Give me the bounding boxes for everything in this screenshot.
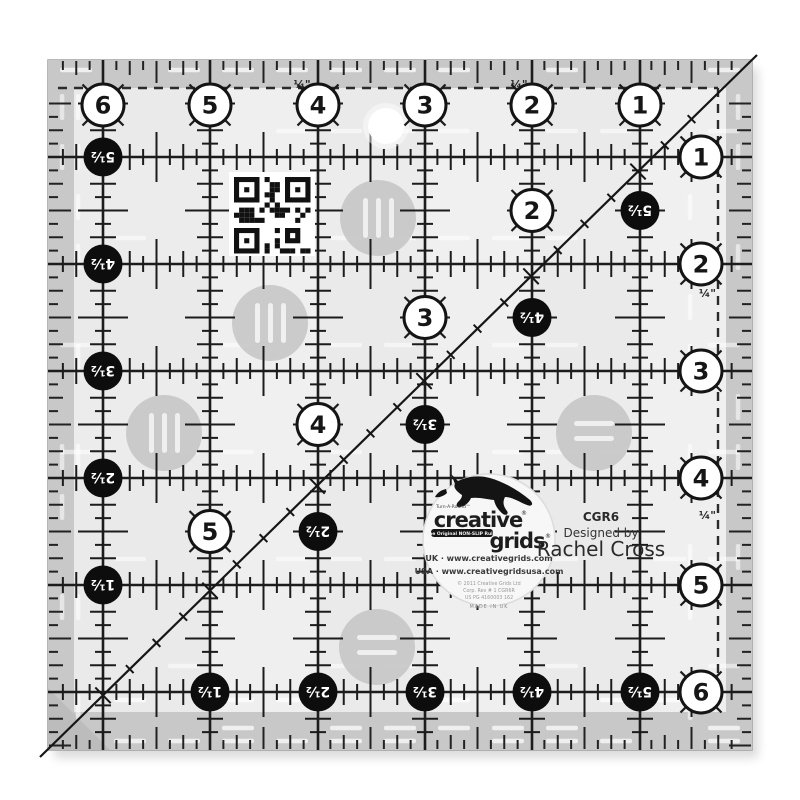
quarter-label-right-upper: ¼" [699, 287, 716, 300]
grip-dot-stripe [574, 436, 614, 441]
circle-number: 2 [693, 251, 710, 279]
grip-dash [708, 739, 740, 744]
circle-number: 1½ [91, 576, 115, 592]
quarter-label-right-lower: ¼" [699, 509, 716, 522]
qr-module [280, 208, 285, 213]
circle-number: 3 [417, 92, 434, 120]
grip-dash [546, 68, 578, 73]
grip-dash [492, 739, 524, 744]
circle-number: 5½ [628, 201, 652, 217]
qr-module [275, 243, 280, 248]
half-number-circle: 4½ [513, 298, 552, 337]
grip-dash [330, 343, 362, 348]
circle-number: 1 [693, 144, 710, 172]
qr-module [275, 187, 280, 192]
qr-module [300, 248, 305, 253]
grip-dot-stripe [149, 413, 154, 453]
qr-module [265, 177, 270, 182]
grip-dash [546, 129, 578, 134]
half-number-circle: 1½ [191, 673, 230, 712]
qr-module [239, 218, 244, 223]
grip-dash [330, 129, 362, 134]
circle-number: 5½ [628, 683, 652, 699]
grip-dash-vertical [76, 94, 81, 120]
grip-dash [438, 129, 470, 134]
qr-finder-dot [295, 187, 300, 192]
grip-dot-stripe [363, 198, 368, 238]
qr-module [275, 182, 280, 187]
grip-dash [276, 557, 308, 562]
grip-dash [546, 343, 578, 348]
qr-module [270, 192, 275, 197]
grip-dash-vertical [688, 294, 693, 320]
grip-dot-stripe [574, 421, 614, 426]
grip-dash [330, 726, 362, 731]
grip-dot-stripe [255, 303, 260, 343]
circle-number: 4½ [520, 683, 544, 699]
qr-module [239, 213, 244, 218]
grip-dash [114, 236, 146, 241]
qr-module [275, 213, 280, 218]
grip-dot-stripe [389, 198, 394, 238]
copyright-line-3: US PG 4160003 162 [465, 595, 513, 601]
grip-dash [708, 557, 740, 562]
qr-finder-dot [244, 187, 249, 192]
whole-number-circle: 6 [82, 84, 124, 126]
grip-dash [546, 726, 578, 731]
registered-mark: ® [521, 510, 527, 517]
half-number-circle: 3½ [406, 673, 445, 712]
qr-module [249, 213, 254, 218]
grip-dash [708, 726, 740, 731]
qr-module [265, 192, 270, 197]
circle-number: 3½ [413, 683, 437, 699]
qr-module [270, 187, 275, 192]
grip-dash [168, 664, 200, 669]
half-number-circle: 3½ [406, 405, 445, 444]
grip-dash-vertical [60, 494, 65, 520]
grip-dash [708, 450, 740, 455]
whole-number-circle: 1 [619, 84, 661, 126]
grip-dash [438, 68, 470, 73]
qr-module [300, 213, 305, 218]
circle-number: 2½ [306, 522, 330, 538]
qr-module [270, 208, 275, 213]
hang-hole [363, 103, 409, 149]
whole-number-circle: 3 [404, 84, 446, 126]
circle-number: 4 [310, 92, 327, 120]
tagline-text: The Original NON-SLIP Ruler [426, 531, 499, 537]
copyright-line-2: Corp. Rev # 1 CGR6R [463, 588, 515, 594]
qr-code [229, 172, 315, 256]
circle-number: 1 [632, 92, 649, 120]
grip-dash-vertical [736, 444, 741, 470]
qr-module [234, 213, 239, 218]
circle-number: 4 [693, 465, 710, 493]
grip-dash [222, 726, 254, 731]
whole-number-circle: 1 [680, 136, 722, 178]
circle-number: 5 [202, 518, 219, 546]
grip-dash-vertical [736, 544, 741, 570]
grip-dash-vertical [60, 594, 65, 620]
grip-dash [276, 129, 308, 134]
grip-dot-stripe [357, 650, 397, 655]
half-number-circle: 4½ [513, 673, 552, 712]
designer-name-text: Rachel Cross [537, 537, 665, 561]
circle-number: 2 [524, 92, 541, 120]
whole-number-circle: 3 [680, 350, 722, 392]
whole-number-circle: 3 [404, 297, 446, 339]
half-number-circle: 4½ [84, 245, 123, 284]
circle-number: 2½ [91, 469, 115, 485]
circle-number: 6 [693, 679, 710, 707]
grip-dash [384, 726, 416, 731]
qr-module [290, 248, 295, 253]
grip-dash [384, 343, 416, 348]
ruler-photo-svg: ¼" ¼" ¼" ¼" 6543211234565½4½3½2½1½1½2½3½… [0, 0, 800, 800]
half-number-circle: 2½ [299, 512, 338, 551]
hang-hole [368, 108, 404, 144]
grip-dash [438, 236, 470, 241]
qr-module [265, 243, 270, 248]
half-number-circle: 3½ [84, 352, 123, 391]
half-number-circle: 5½ [621, 673, 660, 712]
grip-dot-stripe [162, 413, 167, 453]
circle-number: 3 [417, 304, 434, 332]
qr-module [285, 248, 290, 253]
qr-module [305, 248, 310, 253]
grip-dash [330, 557, 362, 562]
whole-number-circle: 5 [189, 84, 231, 126]
grip-dash [222, 450, 254, 455]
qr-module [275, 238, 280, 243]
grip-dash [708, 129, 740, 134]
circle-number: 5 [693, 572, 710, 600]
grip-dot-stripe [268, 303, 273, 343]
whole-number-circle: 5 [680, 564, 722, 606]
qr-align-inner [290, 233, 295, 238]
circle-number: 5½ [91, 148, 115, 164]
grip-dot-stripe [376, 198, 381, 238]
qr-finder-dot [244, 238, 249, 243]
qr-module [265, 248, 270, 253]
circle-number: 6 [95, 92, 112, 120]
qr-module [249, 208, 254, 213]
circle-number: 3½ [91, 362, 115, 378]
whole-number-circle: 2 [511, 84, 553, 126]
qr-module [260, 218, 265, 223]
qr-module [249, 218, 254, 223]
model-text: CGR6 [583, 510, 619, 524]
whole-number-circle: 6 [680, 671, 722, 713]
whole-number-circle: 4 [297, 84, 339, 126]
whole-number-circle: 2 [680, 243, 722, 285]
circle-number: 3 [693, 358, 710, 386]
grip-dash-vertical [60, 94, 65, 120]
circle-number: 5 [202, 92, 219, 120]
qr-module [270, 197, 275, 202]
whole-number-circle: 5 [189, 511, 231, 553]
qr-module [265, 203, 270, 208]
grip-dot-stripe [357, 635, 397, 640]
qr-module [270, 182, 275, 187]
grip-dash [708, 664, 740, 669]
qr-module [280, 248, 285, 253]
qr-module [280, 213, 285, 218]
whole-number-circle: 4 [297, 404, 339, 446]
qr-module [244, 213, 249, 218]
product-photo: ¼" ¼" ¼" ¼" 6543211234565½4½3½2½1½1½2½3½… [0, 0, 800, 800]
qr-module [275, 228, 280, 233]
grip-dash [438, 726, 470, 731]
qr-module [295, 208, 300, 213]
qr-module [285, 208, 290, 213]
whole-number-circle: 2 [511, 190, 553, 232]
grip-dash-vertical [60, 444, 65, 470]
grip-dash-vertical [688, 194, 693, 220]
grip-dash-vertical [736, 94, 741, 120]
circle-number: 2½ [306, 683, 330, 699]
circle-number: 2 [524, 197, 541, 225]
grip-dash [708, 343, 740, 348]
grip-dot [556, 395, 632, 471]
uk-url-text: UK · www.creativegrids.com [425, 554, 552, 563]
grip-dash-vertical [736, 244, 741, 270]
grip-dash-vertical [76, 194, 81, 220]
half-number-circle: 1½ [84, 566, 123, 605]
bottom-band [48, 712, 752, 750]
half-number-circle: 2½ [299, 673, 338, 712]
qr-module [295, 218, 300, 223]
half-number-circle: 2½ [84, 459, 123, 498]
qr-module [275, 208, 280, 213]
copyright-line-1: © 2011 Creative Grids Ltd [457, 580, 520, 587]
grip-dash [492, 726, 524, 731]
circle-number: 4½ [520, 308, 544, 324]
circle-number: 4½ [91, 255, 115, 271]
qr-module [275, 203, 280, 208]
circle-number: 3½ [413, 415, 437, 431]
qr-module [305, 208, 310, 213]
made-in-text: MADE IN UK [470, 604, 509, 610]
usa-url-text: USA · www.creativegridsusa.com [415, 567, 564, 576]
grip-dash [546, 664, 578, 669]
half-number-circle: 5½ [84, 138, 123, 177]
grip-dot-stripe [175, 413, 180, 453]
qr-module [260, 208, 265, 213]
qr-module [244, 218, 249, 223]
grip-dash [384, 557, 416, 562]
grip-dot-stripe [281, 303, 286, 343]
whole-number-circle: 4 [680, 457, 722, 499]
half-number-circle: 5½ [621, 191, 660, 230]
grip-dash [114, 557, 146, 562]
grip-dash [708, 68, 740, 73]
circle-number: 4 [310, 411, 327, 439]
grip-dash [546, 739, 578, 744]
grip-dot [339, 609, 415, 685]
grip-dash [600, 739, 632, 744]
qr-module [244, 208, 249, 213]
grip-dash [330, 450, 362, 455]
qr-module [254, 218, 259, 223]
circle-number: 1½ [198, 683, 222, 699]
qr-module [239, 208, 244, 213]
